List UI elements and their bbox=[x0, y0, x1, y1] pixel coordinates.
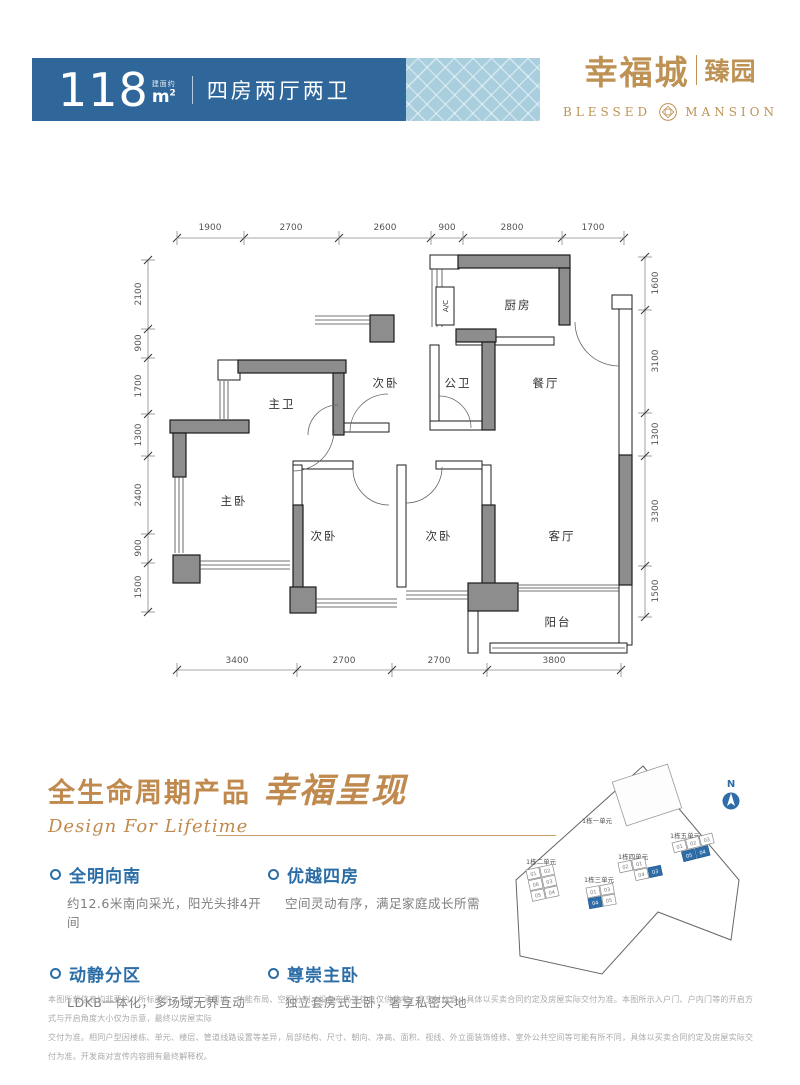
banner-pattern bbox=[406, 58, 540, 121]
room-dining: 餐厅 bbox=[533, 376, 560, 390]
feature-desc: 空间灵动有序，满足家庭成长所需 bbox=[285, 893, 490, 912]
unit-number: 01 bbox=[590, 889, 597, 896]
dim-left-3: 1700 bbox=[134, 374, 144, 397]
headline-en: Design For Lifetime bbox=[48, 816, 518, 837]
room-master-bedroom: 主卧 bbox=[221, 494, 248, 508]
feature-desc: 约12.6米南向采光，阳光头排4开间 bbox=[67, 893, 268, 931]
dim-left-6: 900 bbox=[134, 539, 144, 556]
area-unit: 建面约 m2 bbox=[152, 79, 176, 106]
dim-line-left: 2100 900 1700 1300 2400 900 1500 bbox=[134, 256, 155, 616]
disclaimer-line-1: 本图所载信息均非要约，所标面积、尺寸、承重墙、功能布局、空间分割、设备布局等信息… bbox=[48, 990, 756, 1028]
brand-emblem-icon bbox=[658, 101, 678, 123]
feature-item: 全明向南 约12.6米南向采光，阳光头排4开间 bbox=[50, 862, 268, 931]
headline-cn: 全生命周期产品 bbox=[48, 771, 251, 810]
dim-left-4: 1300 bbox=[134, 423, 144, 446]
headline-calligraphy: 幸福呈现 bbox=[263, 763, 407, 812]
dim-left-2: 900 bbox=[134, 334, 144, 351]
dim-bottom-3: 2700 bbox=[428, 656, 451, 666]
banner-divider bbox=[192, 76, 193, 104]
floor-plan: 1900 2700 2600 900 2800 1700 2100 900 bbox=[130, 215, 670, 695]
headline-rule bbox=[216, 835, 556, 836]
brand-name-cn: 幸福城 bbox=[584, 46, 689, 94]
area-banner: 118 建面约 m2 四房两厅两卫 bbox=[32, 58, 540, 121]
feature-title: 全明向南 bbox=[69, 862, 141, 887]
dim-top-1: 1900 bbox=[199, 223, 222, 233]
unit-m-letter: m bbox=[152, 87, 170, 107]
feature-title: 尊崇主卧 bbox=[287, 961, 359, 986]
room-balcony: 阳台 bbox=[545, 615, 572, 629]
feature-title: 动静分区 bbox=[69, 961, 141, 986]
ring-bullet-icon bbox=[50, 869, 61, 880]
headline-block: 全生命周期产品 幸福呈现 Design For Lifetime bbox=[48, 763, 518, 837]
brand-logo-cn: 幸福城 臻园 bbox=[563, 46, 778, 94]
area-value: 118 bbox=[58, 67, 149, 113]
disclaimer: 本图所载信息均非要约，所标面积、尺寸、承重墙、功能布局、空间分割、设备布局等信息… bbox=[48, 990, 756, 1066]
compass-n-label: N bbox=[727, 779, 735, 790]
unit-m-sup: 2 bbox=[170, 88, 176, 98]
room-public-bath: 公卫 bbox=[445, 376, 472, 390]
brand-logo: 幸福城 臻园 BLESSED MANSION bbox=[563, 46, 778, 123]
dim-right-2: 3100 bbox=[651, 349, 661, 372]
room-bedroom-left: 次卧 bbox=[311, 529, 338, 543]
feature-item: 优越四房 空间灵动有序，满足家庭成长所需 bbox=[268, 862, 490, 931]
room-bedroom-mid: 次卧 bbox=[426, 529, 453, 543]
dim-line-top: 1900 2700 2600 900 2800 1700 bbox=[173, 223, 628, 245]
dim-right-4: 3300 bbox=[651, 499, 661, 522]
brand-logo-en: BLESSED MANSION bbox=[563, 101, 778, 123]
room-bedroom-top: 次卧 bbox=[373, 376, 400, 390]
brand-subname-cn: 臻园 bbox=[704, 52, 756, 88]
cluster-label: 1栋三单元 bbox=[584, 875, 615, 884]
dim-top-5: 2800 bbox=[501, 223, 524, 233]
logo-divider bbox=[696, 55, 697, 85]
site-plan: 1栋一单元 N 1栋二单元 01 02 06 03 05 04 1栋三单元 01… bbox=[506, 760, 756, 995]
ring-bullet-icon bbox=[268, 968, 279, 979]
unit-cluster: 01 02 06 03 05 04 bbox=[526, 864, 559, 901]
room-kitchen: 厨房 bbox=[505, 298, 532, 312]
building-one-label: 1栋一单元 bbox=[582, 816, 613, 825]
unit-number: 03 bbox=[604, 887, 611, 894]
area-prefix: 建面约 bbox=[152, 79, 176, 89]
windows bbox=[175, 269, 625, 648]
area-unit-m: m2 bbox=[152, 89, 176, 106]
layout-type: 四房两厅两卫 bbox=[207, 75, 351, 105]
brand-name-en-right: MANSION bbox=[685, 105, 778, 119]
feature-title: 优越四房 bbox=[287, 862, 359, 887]
flyer-page: 118 建面约 m2 四房两厅两卫 幸福城 臻园 BLESSED MANSION bbox=[0, 0, 800, 1085]
dim-top-2: 2700 bbox=[280, 223, 303, 233]
ring-bullet-icon bbox=[50, 968, 61, 979]
room-living: 客厅 bbox=[549, 529, 576, 543]
north-compass-icon: N bbox=[723, 779, 740, 810]
room-master-bath: 主卫 bbox=[269, 397, 296, 411]
dim-line-right: 1600 3100 1300 3300 1500 bbox=[638, 253, 661, 621]
dim-right-3: 1300 bbox=[651, 422, 661, 445]
dim-bottom-4: 3800 bbox=[543, 656, 566, 666]
dim-left-5: 2400 bbox=[134, 483, 144, 506]
dim-left-1: 2100 bbox=[134, 282, 144, 305]
building-one bbox=[612, 764, 681, 826]
ac-label: A/C bbox=[442, 300, 450, 312]
dim-top-6: 1700 bbox=[582, 223, 605, 233]
dim-bottom-1: 3400 bbox=[226, 656, 249, 666]
dim-bottom-2: 2700 bbox=[333, 656, 356, 666]
dim-top-3: 2600 bbox=[374, 223, 397, 233]
dim-line-bottom: 3400 2700 2700 3800 bbox=[173, 656, 625, 677]
dim-left-7: 1500 bbox=[134, 575, 144, 598]
disclaimer-line-2: 交付为准。相同户型因楼栋、单元、楼层、管道线路设置等差异，局部结构、尺寸、朝向、… bbox=[48, 1028, 756, 1066]
dim-top-4: 900 bbox=[438, 223, 455, 233]
dim-right-5: 1500 bbox=[651, 579, 661, 602]
unit-number-highlighted: 04 bbox=[592, 900, 599, 907]
brand-name-en-left: BLESSED bbox=[563, 105, 651, 119]
unit-cluster: 01 03 05 04 bbox=[586, 883, 616, 908]
unit-number: 05 bbox=[605, 898, 612, 905]
feature-list: 全明向南 约12.6米南向采光，阳光头排4开间 优越四房 空间灵动有序，满足家庭… bbox=[50, 862, 490, 1011]
area-banner-dark: 118 建面约 m2 四房两厅两卫 bbox=[32, 58, 406, 121]
ring-bullet-icon bbox=[268, 869, 279, 880]
dim-right-1: 1600 bbox=[651, 271, 661, 294]
